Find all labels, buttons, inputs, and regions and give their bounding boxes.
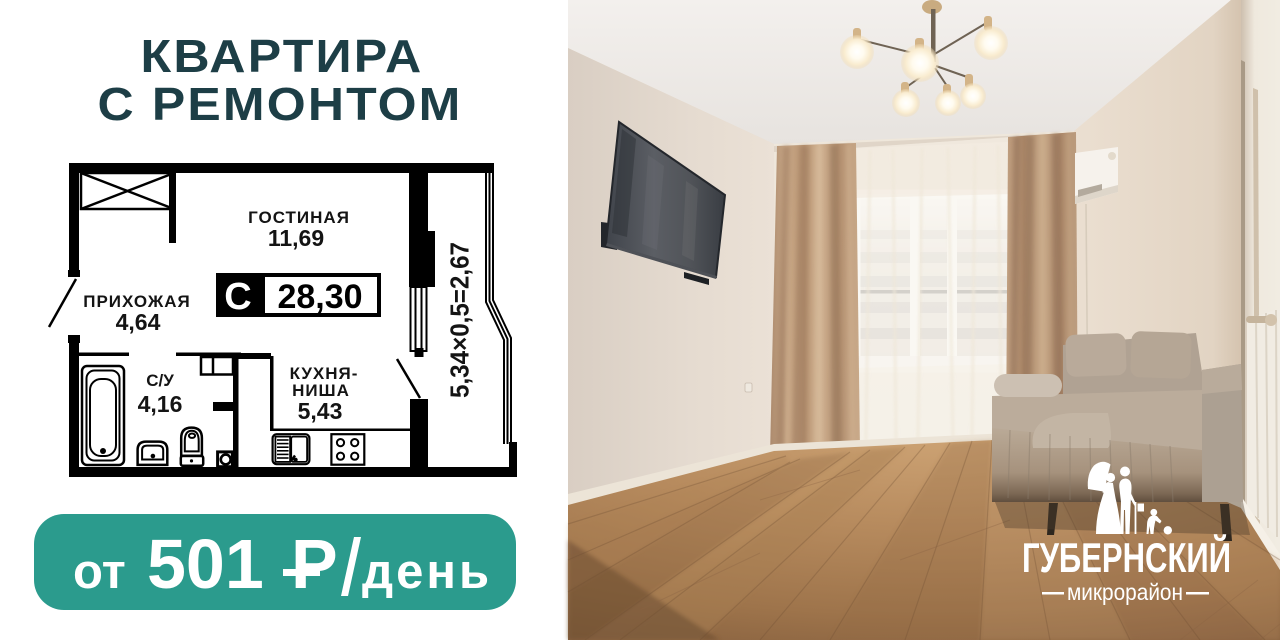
svg-text:501: 501	[147, 525, 264, 603]
svg-text:микрорайон: микрорайон	[1067, 579, 1183, 605]
svg-text:С: С	[224, 276, 251, 318]
svg-text:5,34×0,5=2,67: 5,34×0,5=2,67	[445, 242, 475, 398]
svg-text:11,69: 11,69	[268, 225, 324, 251]
svg-text:С РЕМОНТОМ: С РЕМОНТОМ	[98, 78, 463, 130]
svg-text:КВАРТИРА: КВАРТИРА	[141, 30, 424, 82]
svg-text:4,16: 4,16	[138, 391, 183, 417]
svg-text:28,30: 28,30	[277, 278, 362, 316]
svg-text:Р: Р	[291, 525, 338, 603]
svg-text:ГУБЕРНСКИЙ: ГУБЕРНСКИЙ	[1022, 533, 1231, 581]
svg-text:день: день	[362, 545, 492, 599]
svg-text:5,43: 5,43	[298, 398, 343, 424]
svg-text:С/У: С/У	[146, 371, 174, 390]
svg-text:4,64: 4,64	[116, 309, 161, 335]
svg-text:от: от	[73, 545, 126, 599]
